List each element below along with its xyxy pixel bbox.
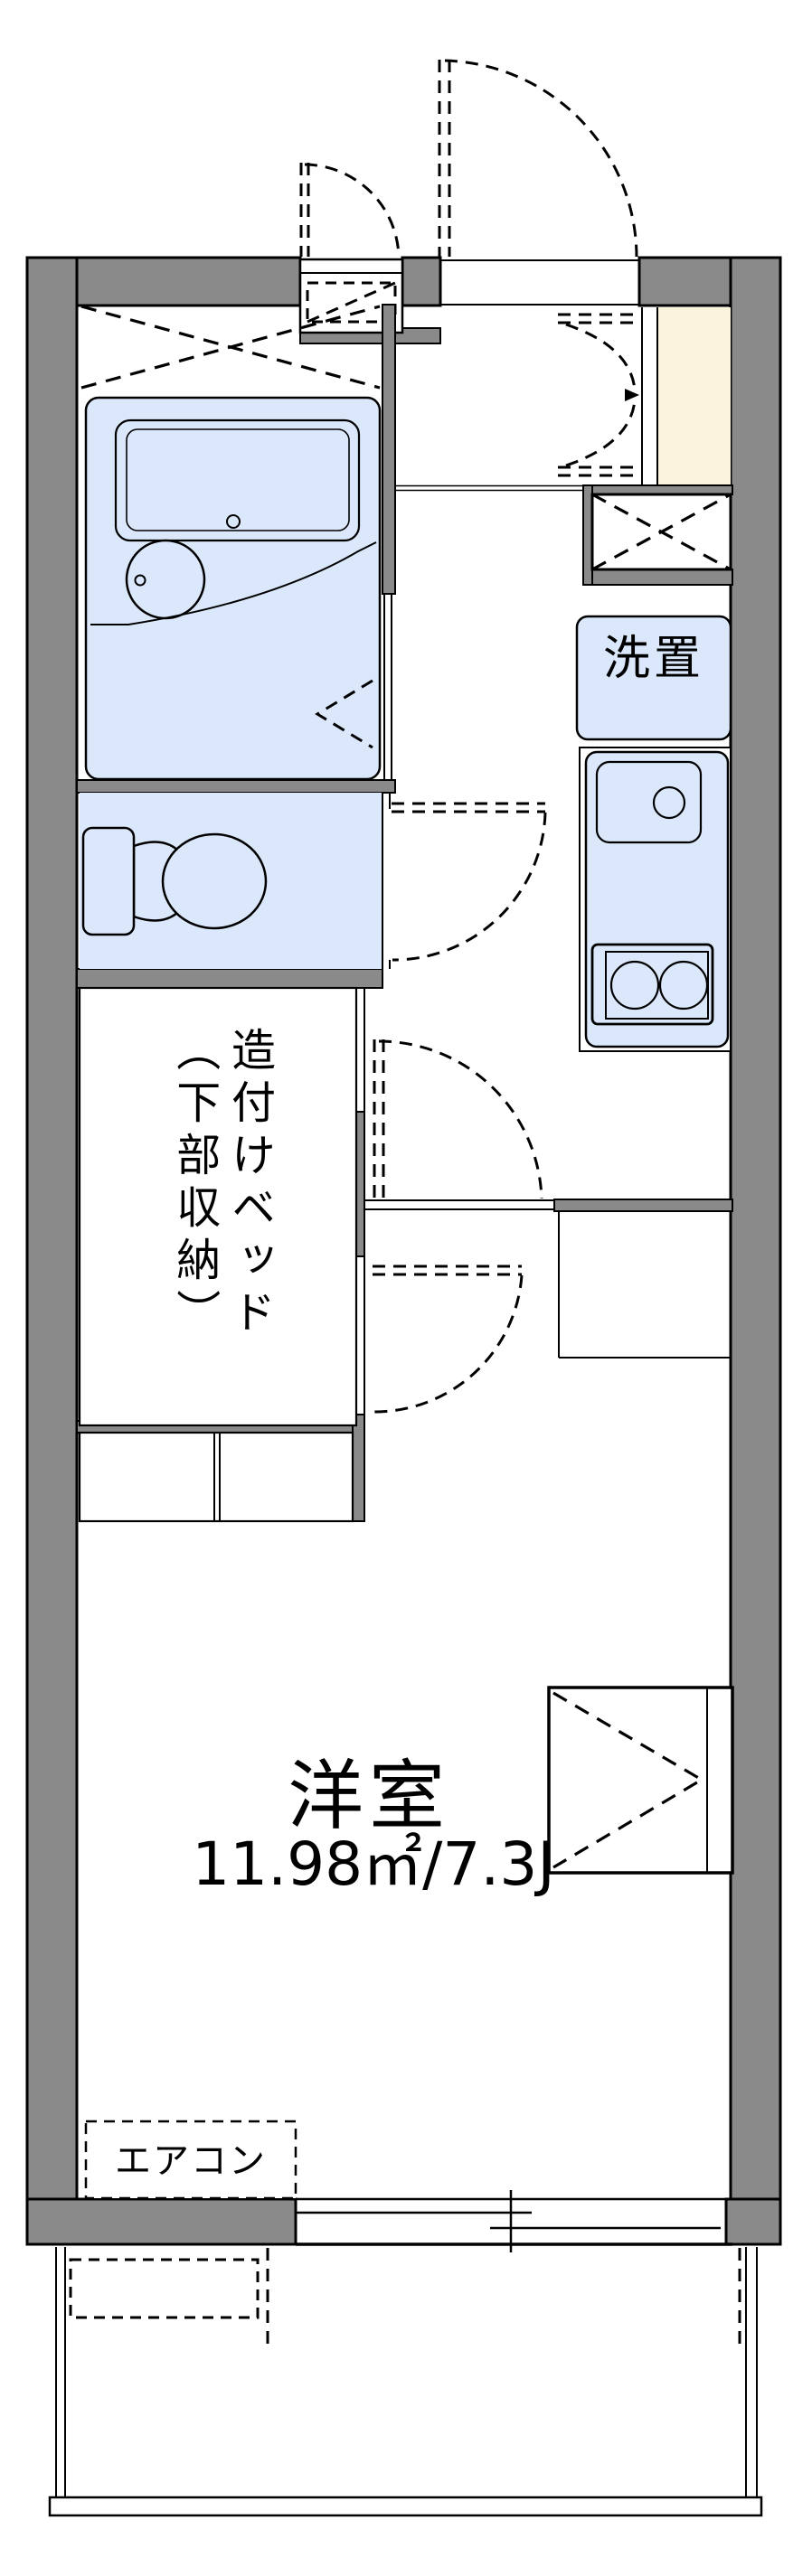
bath-toilet-wall <box>77 780 395 793</box>
shoe-box-frame-bottom <box>583 569 732 585</box>
entry-door <box>439 60 639 305</box>
shoe-cabinet-door-arc-icon <box>566 324 635 390</box>
meter-box <box>300 163 440 343</box>
ac-outdoor-unit-box <box>71 2260 258 2317</box>
toilet-room <box>80 793 545 969</box>
bathroom <box>81 306 380 779</box>
hall-bath-wall <box>382 305 395 594</box>
hall-door-swing-arc-icon <box>379 1041 542 1199</box>
wash-basin-icon <box>127 541 204 618</box>
closet <box>549 1688 732 1873</box>
top-wall-pillar <box>402 258 440 306</box>
closet-wall-stub <box>353 1415 364 1521</box>
floor-plan-drawing: 洗置 洋室 11.98㎡/7.3J エアコン <box>0 0 812 2576</box>
western-room-size: 11.98㎡/7.3J <box>192 1829 555 1899</box>
toilet-door-swing-arc-icon <box>392 813 545 960</box>
aircon-label: エアコン <box>115 2140 267 2182</box>
entry-door-swing-arc-icon <box>445 61 637 257</box>
built-in-bed-label: 造付けベッド （下部収納） <box>159 1027 277 1424</box>
laundry-kitchen: 洗置 <box>577 616 731 1051</box>
bed-room <box>80 988 542 1521</box>
meter-box-door-swing-arc-icon <box>305 165 399 257</box>
western-room-label: 洋室 <box>288 1752 450 1840</box>
hall-room-wall <box>554 1199 732 1211</box>
shoe-cabinet-door-arc-icon <box>566 400 635 465</box>
laundry-label: 洗置 <box>603 632 704 686</box>
left-wall <box>27 258 77 2244</box>
toilet-bed-wall <box>77 969 382 988</box>
floor-plan: 洗置 洋室 11.98㎡/7.3J エアコン <box>0 0 812 2576</box>
balcony-railing <box>50 2497 761 2515</box>
bottom-wall-right <box>726 2199 780 2244</box>
bottom-wall-left <box>27 2199 296 2244</box>
kitchen-unit <box>586 752 728 1047</box>
toilet-bowl-icon <box>163 834 266 928</box>
toilet-tank-icon <box>83 828 134 935</box>
genkan-floor <box>658 307 731 485</box>
entry-area <box>395 307 732 585</box>
right-wall <box>731 258 780 2199</box>
room-door-swing-arc-icon <box>373 1275 522 1412</box>
built-in-bed-label-line2: （下部収納） <box>167 1027 222 1424</box>
under-bed-storage-front <box>80 1433 353 1521</box>
door-swing-arrow-icon <box>625 389 639 401</box>
built-in-bed-label-line1: 造付けベッド <box>222 1027 277 1424</box>
